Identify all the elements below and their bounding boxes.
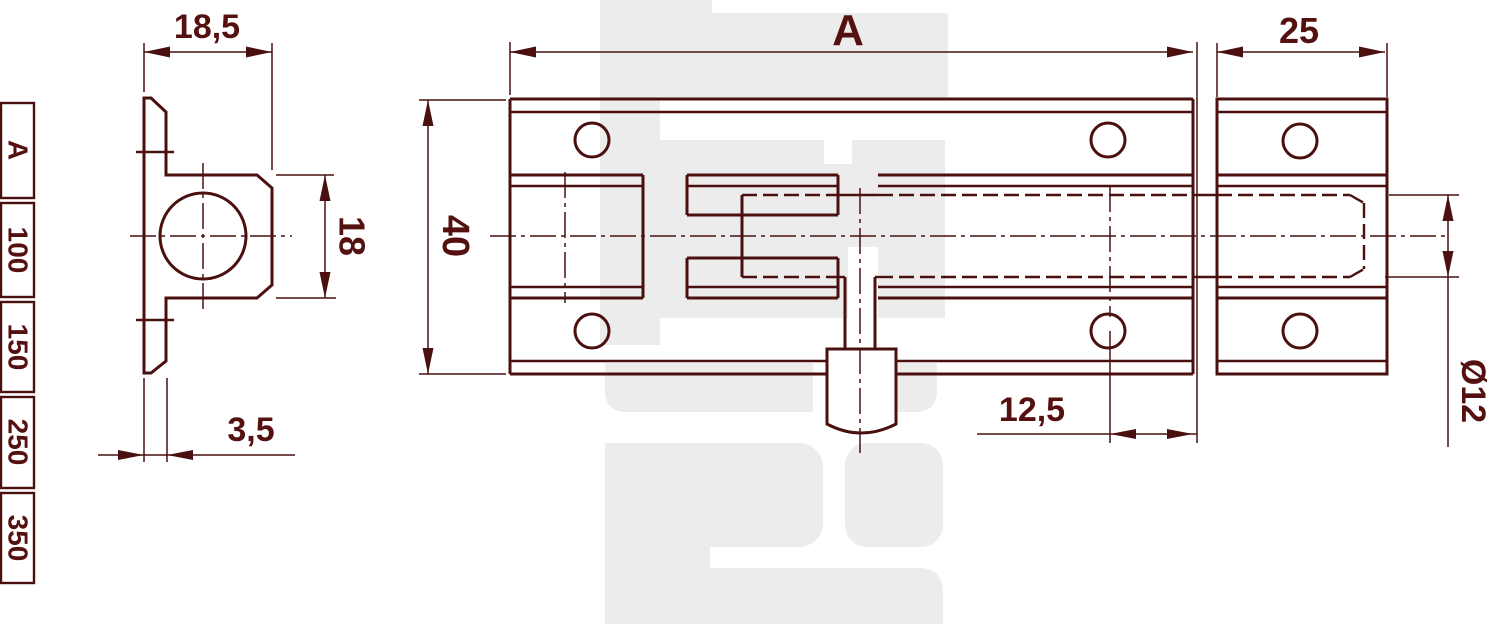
size-table: A 100 150 250 350 [1, 103, 34, 583]
technical-drawing-page: A 100 150 250 350 18,5 18 3,5 [0, 0, 1500, 624]
dim-label-boss-height: 18 [332, 216, 373, 256]
screw-hole-icon [1283, 124, 1317, 158]
dim-label-plate-thickness: 3,5 [227, 411, 274, 449]
table-value-250: 250 [3, 419, 34, 466]
table-value-100: 100 [3, 227, 34, 274]
table-value-350: 350 [3, 515, 34, 562]
watermark-logo [600, 0, 948, 624]
dim-label-hole-offset: 12,5 [999, 391, 1065, 429]
dim-label-bolt-diameter: Ø12 [1454, 359, 1492, 423]
knob-shape [827, 349, 896, 433]
dim-label-keeper-length: 25 [1279, 10, 1319, 51]
side-view-dimensions: 18,5 18 3,5 [98, 8, 373, 462]
main-dimensions: A 25 40 12,5 Ø12 [419, 6, 1492, 447]
drawing-canvas: A 100 150 250 350 18,5 18 3,5 [0, 0, 1500, 624]
screw-hole-icon [1283, 314, 1317, 348]
dim-label-flange-width: 18,5 [174, 8, 240, 46]
dim-label-total-length: A [832, 6, 864, 55]
screw-hole-icon [1091, 314, 1125, 348]
table-value-150: 150 [3, 324, 34, 371]
table-header-A: A [3, 140, 34, 160]
side-view [130, 98, 292, 373]
dim-label-plate-height: 40 [434, 215, 476, 257]
screw-hole-icon [1091, 123, 1125, 157]
